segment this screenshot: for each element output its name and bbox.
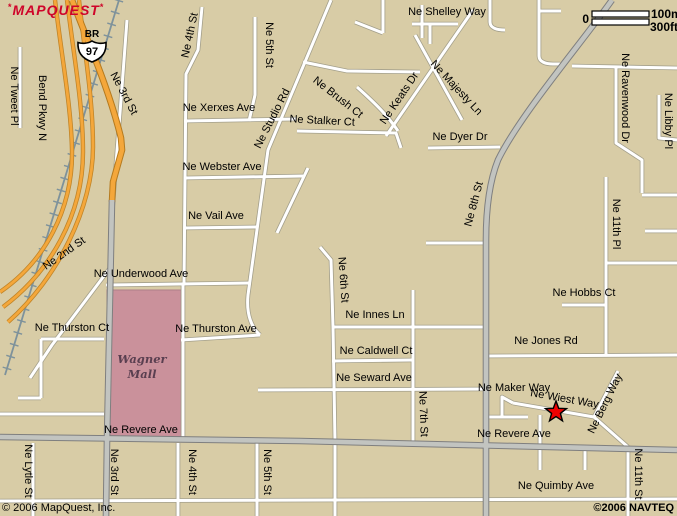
map-canvas: WagnerMallNe 3rd StBend Pkwy NNe Tweet P… xyxy=(0,0,677,516)
street-label: Ne Underwood Ave xyxy=(94,268,189,280)
map[interactable]: WagnerMallNe 3rd StBend Pkwy NNe Tweet P… xyxy=(0,0,677,516)
street-label: Ne 5th St xyxy=(263,22,275,68)
road-ne-dyer-dr xyxy=(428,147,500,148)
scale-bar-metric xyxy=(592,11,649,17)
street-label: Ne Revere Ave xyxy=(477,428,551,440)
street-label: Ne Dyer Dr xyxy=(432,131,487,143)
scale-imperial-label: 300ft xyxy=(650,20,677,34)
street-label: Ne Shelley Way xyxy=(408,6,486,18)
street-label: Ne Libby Pl xyxy=(662,93,674,149)
street-label: Ne Webster Ave xyxy=(182,161,261,173)
street-label: Ne 3rd St xyxy=(108,449,120,495)
street-label: Ne Tweet Pl xyxy=(8,66,20,125)
road-ne-seward-ave xyxy=(258,389,486,390)
road-bottom-road xyxy=(0,499,677,501)
logo-text: MAPQUEST xyxy=(13,2,100,18)
street-label: Ne 5th St xyxy=(261,449,273,495)
copyright-navteq: ©2006 NAVTEQ xyxy=(593,502,674,514)
road-ne-underwood-ave xyxy=(106,283,250,285)
street-label: Ne Xerxes Ave xyxy=(183,102,256,114)
street-label: Ne Revere Ave xyxy=(104,424,178,436)
street-label: Ne Lytle St xyxy=(22,444,34,497)
scale-metric-label: 100m xyxy=(651,7,677,21)
shield-number: 97 xyxy=(86,46,98,58)
area-label: Mall xyxy=(127,367,158,381)
road-ne-caldwell-ct xyxy=(332,360,413,361)
street-label: Ne Thurston Ave xyxy=(175,323,257,335)
street-label: Ne Innes Ln xyxy=(345,309,404,321)
logo-decoration: * xyxy=(100,2,105,12)
street-label: Ne Hobbs Ct xyxy=(553,287,616,299)
street-label: Ne Ravenwood Dr xyxy=(619,53,631,143)
scale-bar-imperial xyxy=(592,19,649,25)
road-ne-xerxes-ave xyxy=(184,119,296,121)
street-label: Ne Caldwell Ct xyxy=(340,345,413,357)
mapquest-logo: *MAPQUEST* xyxy=(8,2,104,18)
street-label: Ne Jones Rd xyxy=(514,335,578,347)
area-label: Wagner xyxy=(117,352,167,366)
street-label: Ne 11th Pl xyxy=(610,199,622,250)
road-ne-jones-rd xyxy=(486,355,677,356)
shield-br-label: BR xyxy=(85,29,100,40)
road-ne-webster-ave xyxy=(184,176,303,178)
street-label: Ne Seward Ave xyxy=(336,372,412,384)
road-ne-vail-ave xyxy=(184,227,258,228)
street-label: Ne 11th St xyxy=(632,448,644,499)
street-label: Ne Vail Ave xyxy=(188,210,244,222)
street-label: Bend Pkwy N xyxy=(36,75,48,141)
street-label: Ne Thurston Ct xyxy=(35,322,109,334)
street-label: Ne 4th St xyxy=(186,449,198,495)
street-label: Ne Quimby Ave xyxy=(518,480,594,492)
copyright-mapquest: © 2006 MapQuest, Inc. xyxy=(2,502,115,514)
street-label: Ne 7th St xyxy=(416,391,430,437)
scale-zero: 0 xyxy=(582,12,589,26)
